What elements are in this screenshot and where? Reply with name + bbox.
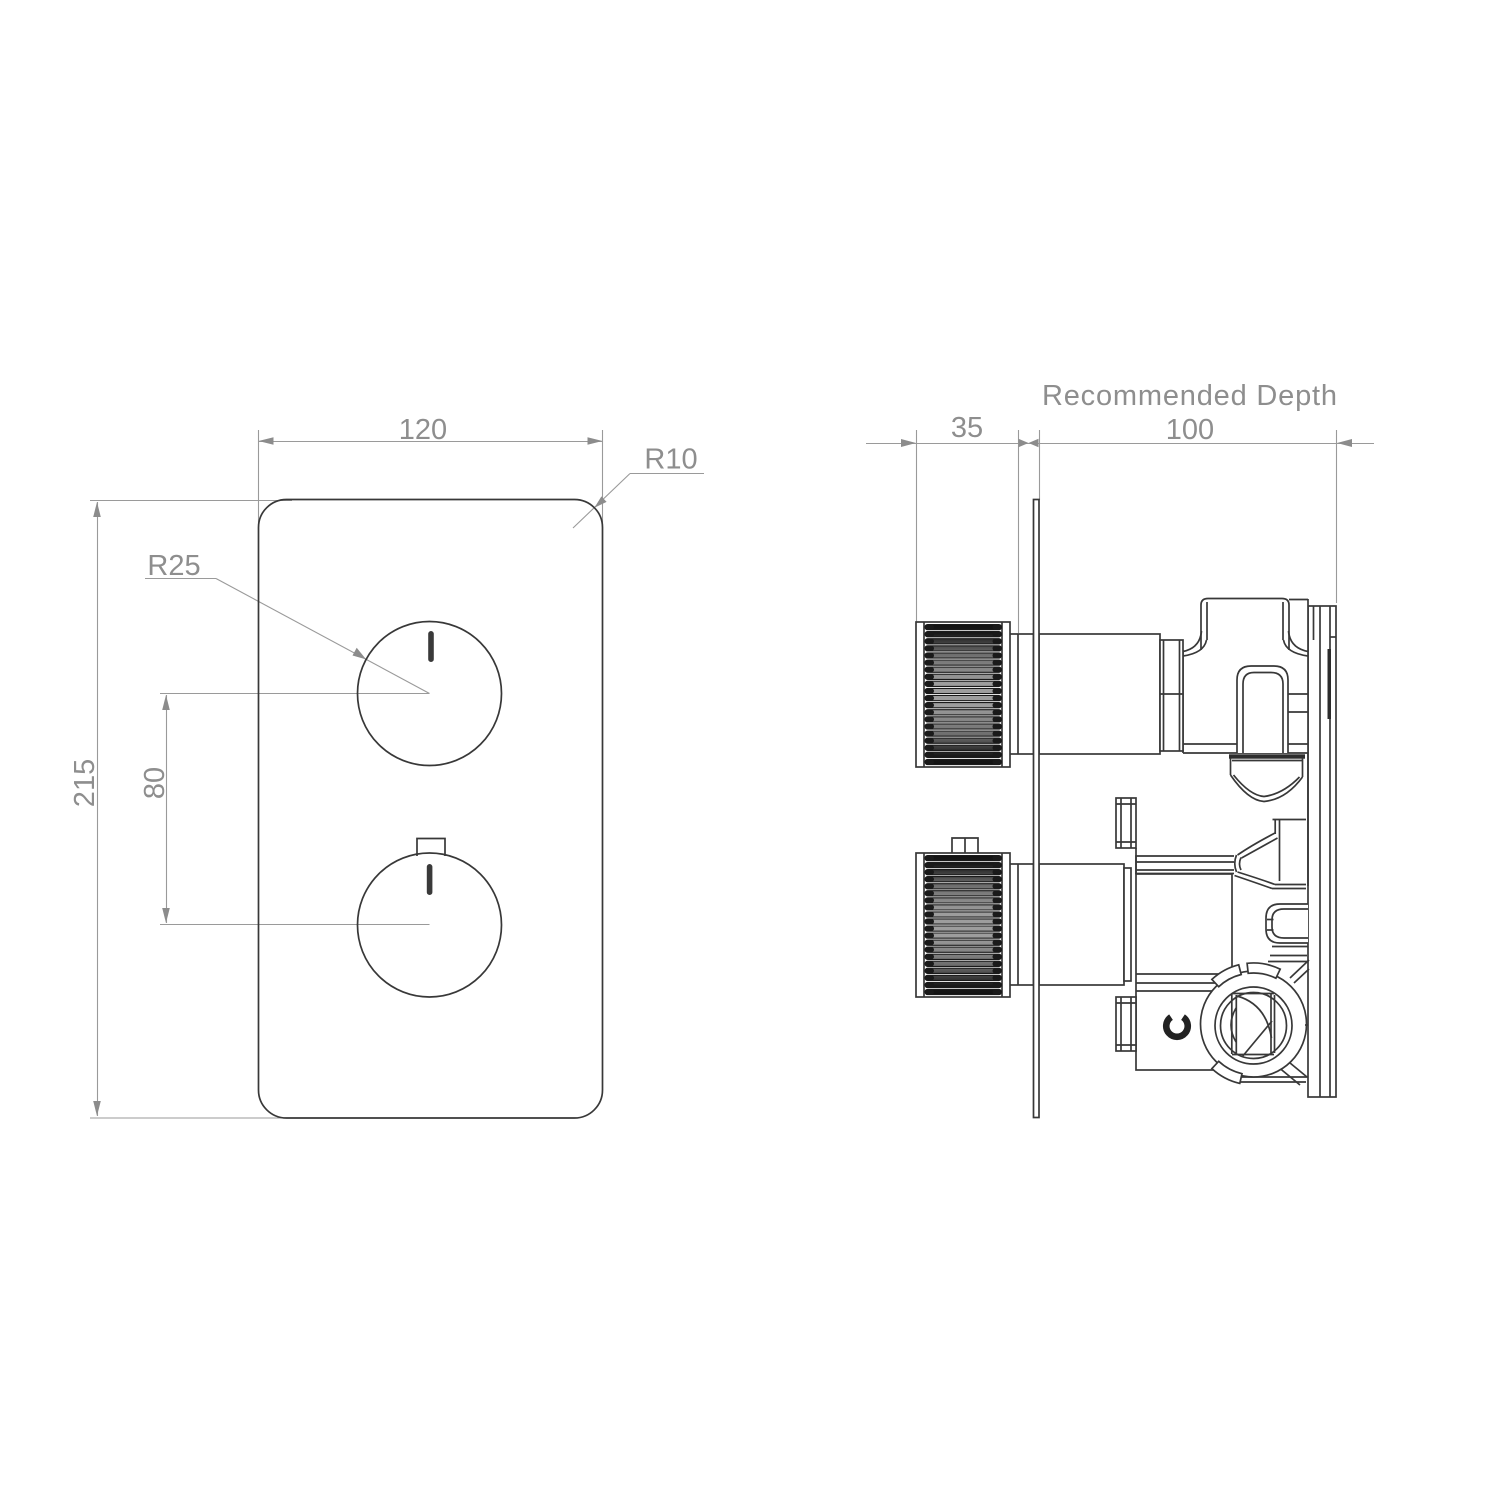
svg-text:R10: R10 (644, 444, 697, 476)
svg-text:215: 215 (69, 759, 101, 807)
svg-text:R25: R25 (147, 550, 200, 582)
svg-text:80: 80 (139, 767, 171, 799)
svg-text:120: 120 (399, 414, 447, 446)
svg-text:100: 100 (1166, 414, 1214, 446)
svg-text:Recommended Depth: Recommended Depth (1042, 380, 1337, 412)
svg-text:35: 35 (951, 412, 983, 444)
